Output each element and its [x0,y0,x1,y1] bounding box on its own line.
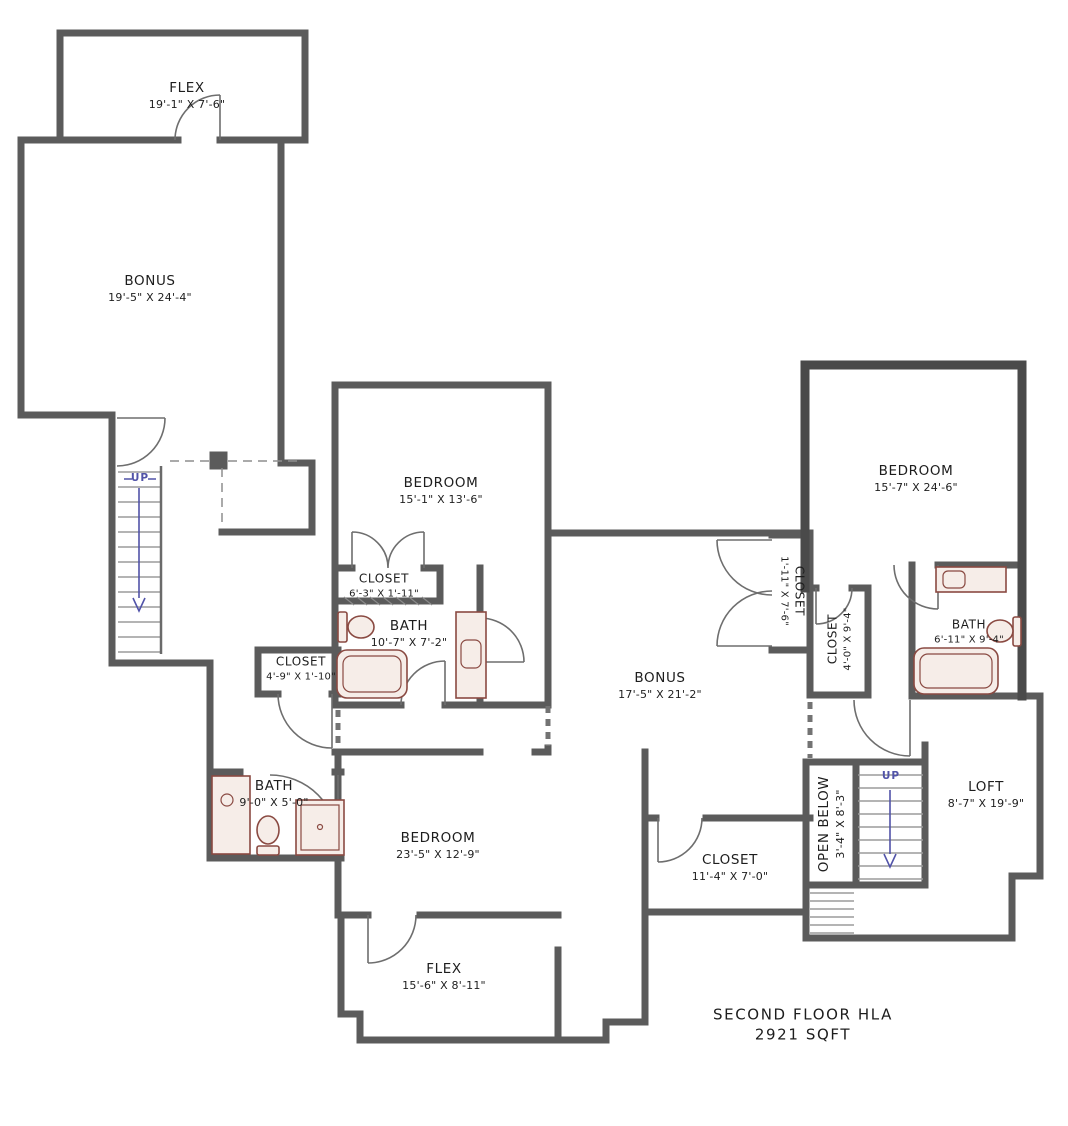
toilet-fixture [338,612,347,642]
plan-title-line1: SECOND FLOOR HLA [713,1006,893,1026]
dashed-ceiling-lines [170,461,303,528]
room-label-bedroom-middle: BEDROOM 15'-1" X 13'-6" [399,475,483,507]
room-label-closet-bottom: CLOSET 11'-4" X 7'-0" [692,852,768,884]
stairs-up-label-right: UP [882,770,900,784]
room-label-closet-middle: CLOSET 6'-3" X 1'-11" [349,572,419,601]
toilet-tank-fixture [257,846,279,855]
floor-plan-drawing [0,0,1068,1126]
room-label-bonus-center: BONUS 17'-5" X 21'-2" [618,670,702,702]
walls-layer [21,33,1040,1040]
room-label-flex-top: FLEX 19'-1" X 7'-6" [149,80,225,112]
room-label-closet-bed2: CLOSET 4'-0" X 9'-4" [826,607,855,670]
room-label-bonus-left: BONUS 19'-5" X 24'-4" [108,273,192,305]
plan-title-line2: 2921 SQFT [713,1025,893,1045]
room-label-bedroom-right: BEDROOM 15'-7" X 24'-6" [874,463,958,495]
room-label-closet-hall: CLOSET 4'-9" X 1'-10" [266,655,336,684]
room-label-closet-tall: CLOSET 1'-11" X 7'-6" [778,556,807,626]
stairs-up-label-left: UP [131,472,149,486]
room-label-bedroom-bottom: BEDROOM 23'-5" X 12'-9" [396,830,480,862]
room-label-loft: LOFT 8'-7" X 19'-9" [948,779,1024,811]
plan-title: SECOND FLOOR HLA 2921 SQFT [713,1006,893,1045]
stairs-left-up-arrow [124,479,156,611]
toilet-bowl-fixture [257,816,279,844]
room-label-bath-middle: BATH 10'-7" X 7'-2" [371,618,447,650]
tub-fixture [914,648,998,694]
room-label-bath-right: BATH 6'-11" X 9'-4" [934,618,1004,647]
toilet-tank-fixture [1013,617,1021,646]
floor-plan: FLEX 19'-1" X 7'-6" BONUS 19'-5" X 24'-4… [0,0,1068,1126]
room-label-flex-bottom: FLEX 15'-6" X 8'-11" [402,961,486,993]
room-label-open-below: OPEN BELOW 3'-4" X 8'-3" [816,776,848,873]
room-label-bath-left: BATH 9'-0" X 5'-0" [239,778,308,810]
